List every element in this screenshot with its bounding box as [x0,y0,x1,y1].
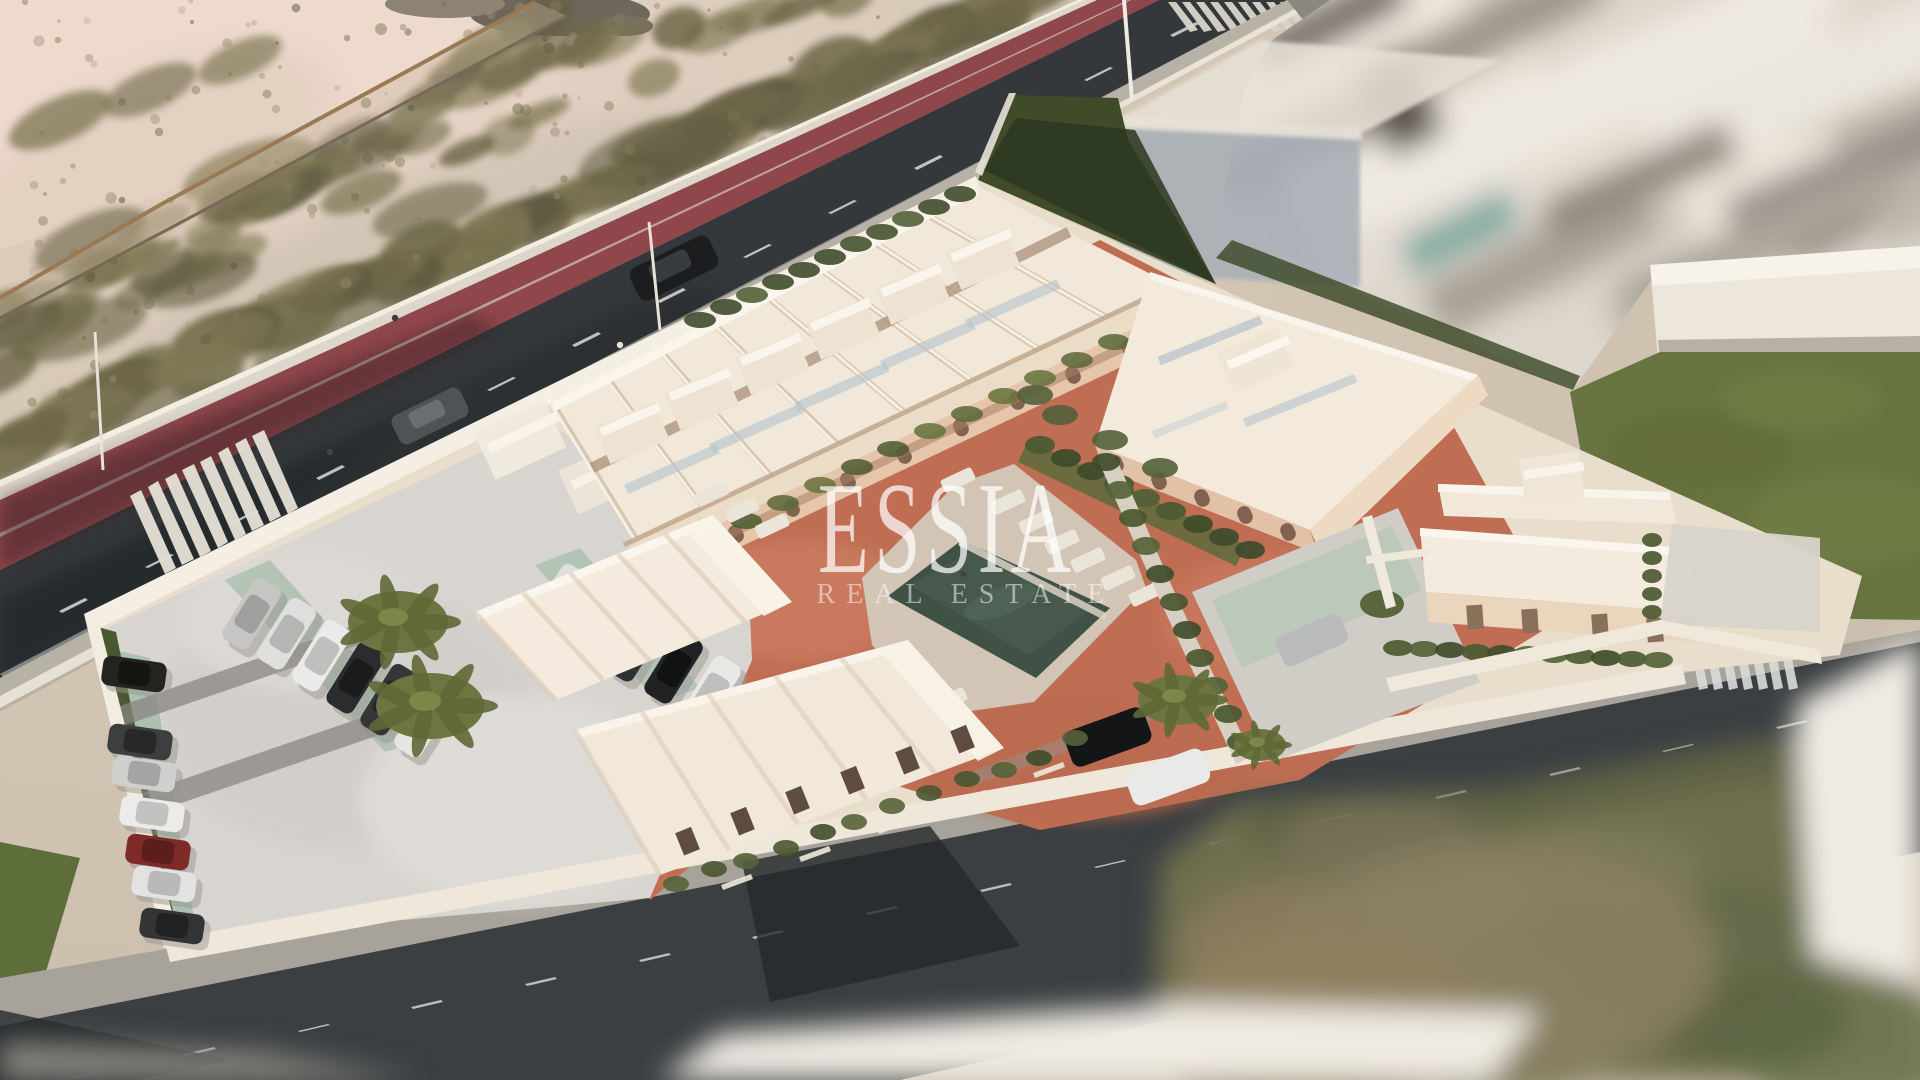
svg-text:REAL ESTATE: REAL ESTATE [817,579,1116,610]
